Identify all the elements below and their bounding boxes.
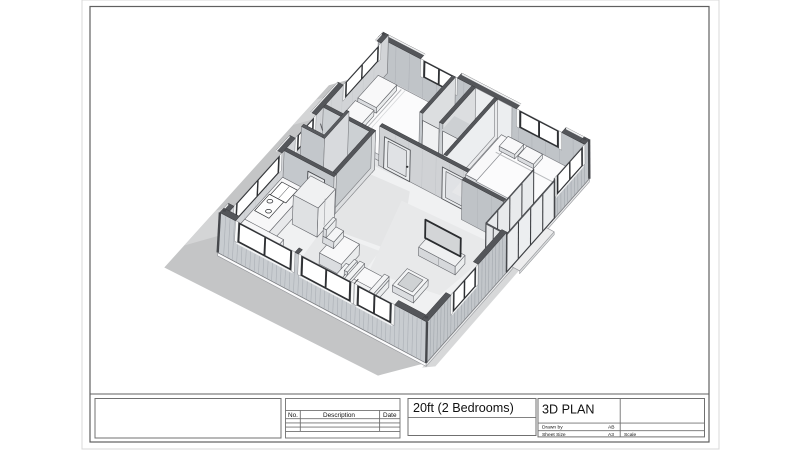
svg-text:Sheet Size: Sheet Size — [542, 432, 566, 438]
svg-text:A3: A3 — [608, 432, 614, 438]
svg-text:AB: AB — [608, 425, 615, 431]
svg-text:Description: Description — [323, 412, 355, 419]
svg-text:Date: Date — [383, 412, 397, 419]
svg-text:No.: No. — [288, 412, 298, 419]
svg-text:20ft (2 Bedrooms): 20ft (2 Bedrooms) — [413, 401, 514, 415]
svg-text:3D PLAN: 3D PLAN — [542, 403, 595, 417]
svg-text:Scale: Scale — [624, 432, 637, 438]
svg-text:Drawn by: Drawn by — [542, 425, 563, 431]
